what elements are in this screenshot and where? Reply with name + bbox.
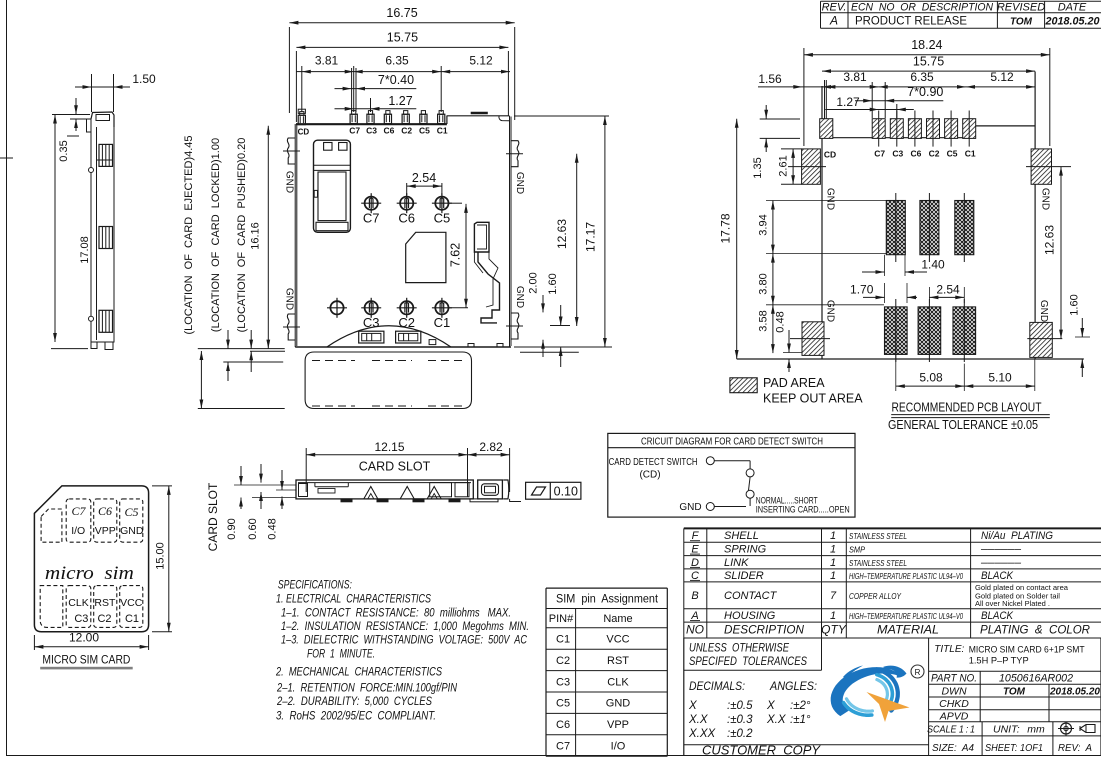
svg-text:1–1. CONTACT RESISTANCE: 80: 1–1. CONTACT RESISTANCE: 80 milliohms MA… (281, 608, 511, 620)
svg-text:12.15: 12.15 (374, 440, 404, 454)
svg-text:6.35: 6.35 (385, 54, 409, 68)
svg-text:CD: CD (298, 128, 310, 137)
svg-text:TOM: TOM (1003, 687, 1026, 698)
svg-text:mm: mm (1027, 724, 1045, 736)
svg-text:12.00: 12.00 (69, 631, 99, 645)
svg-text:C2: C2 (556, 655, 570, 667)
svg-text:(LOCATION OF CARD LOCKED)1.: (LOCATION OF CARD LOCKED)1.00 (210, 138, 222, 332)
svg-text:17.08: 17.08 (79, 236, 91, 264)
svg-text:PLATING & COLOR: PLATING & COLOR (980, 623, 1090, 637)
svg-text:0.60: 0.60 (247, 518, 259, 539)
svg-text:X.XX: X.XX (688, 728, 717, 740)
svg-text:C6: C6 (910, 149, 921, 159)
svg-text:MICRO SIM CARD: MICRO SIM CARD (42, 653, 130, 667)
svg-text:RECOMMENDED PCB LAYOUT: RECOMMENDED PCB LAYOUT (892, 401, 1042, 415)
svg-text:C3: C3 (366, 126, 377, 136)
svg-text:C3: C3 (74, 613, 88, 625)
svg-text:C1: C1 (125, 613, 139, 625)
svg-text:17.17: 17.17 (584, 222, 598, 252)
svg-text:C1: C1 (965, 149, 976, 159)
svg-text:GND: GND (1038, 300, 1049, 322)
svg-text:BLACK: BLACK (981, 610, 1014, 622)
svg-text:––––––: –––––– (980, 557, 1022, 569)
svg-text:C7: C7 (71, 504, 86, 518)
svg-text:R: R (915, 668, 921, 677)
svg-text:2. MECHANICAL CHARACTERISTIC: 2. MECHANICAL CHARACTERISTICS (275, 667, 442, 679)
svg-text:C1: C1 (437, 126, 448, 136)
svg-text:ECN NO OR DESCRIPTION: ECN NO OR DESCRIPTION (851, 2, 993, 14)
svg-text::±0.3: :±0.3 (727, 714, 753, 726)
svg-text:HOUSING: HOUSING (724, 610, 776, 622)
svg-text:5.10: 5.10 (988, 371, 1012, 385)
svg-text:1–3. DIELECTRIC WITHSTANDING: 1–3. DIELECTRIC WITHSTANDING VOLTAGE: 50… (281, 635, 528, 647)
svg-text:X.X: X.X (688, 714, 709, 726)
svg-text:RST: RST (607, 655, 629, 667)
svg-text:18.24: 18.24 (911, 38, 942, 52)
svg-text:C5: C5 (124, 505, 138, 519)
svg-text:1–2. INSULATION RESISTANCE:: 1–2. INSULATION RESISTANCE: 1,000 Megohm… (281, 621, 529, 633)
svg-text:C5: C5 (434, 211, 451, 226)
svg-text:PART NO.: PART NO. (931, 673, 977, 685)
svg-text:C7: C7 (874, 149, 885, 159)
svg-text:C7: C7 (363, 211, 380, 226)
svg-text:SPECIFICATIONS:: SPECIFICATIONS: (278, 580, 352, 592)
svg-text:15.75: 15.75 (387, 31, 418, 45)
svg-text:TOM: TOM (1010, 17, 1033, 28)
svg-text:CHKD: CHKD (939, 698, 969, 710)
svg-text:GND: GND (284, 288, 295, 310)
svg-text:0.10: 0.10 (554, 485, 578, 499)
svg-text:C3: C3 (892, 149, 903, 159)
svg-text:6.35: 6.35 (910, 70, 934, 84)
svg-text:CUSTOMER COPY: CUSTOMER COPY (702, 743, 821, 758)
svg-text:GND: GND (514, 172, 525, 194)
svg-text:0.48: 0.48 (267, 518, 279, 539)
svg-text:CLK: CLK (607, 676, 629, 688)
svg-text:MICRO SIM CARD 6+1P SMT: MICRO SIM CARD 6+1P SMT (969, 645, 1085, 656)
svg-text:12.63: 12.63 (555, 219, 569, 249)
svg-text:DATE: DATE (1058, 2, 1087, 14)
svg-text:SLIDER: SLIDER (724, 570, 764, 582)
svg-text:(LOCATION OF CARD EJECTED)4: (LOCATION OF CARD EJECTED)4.45 (183, 135, 195, 334)
svg-text:NO: NO (686, 623, 704, 637)
svg-text:C6: C6 (98, 504, 112, 518)
svg-text:VCC: VCC (606, 634, 629, 646)
svg-text:GND: GND (606, 698, 631, 710)
svg-text::±0.5: :±0.5 (727, 700, 753, 712)
svg-text:(CD): (CD) (639, 470, 660, 481)
svg-text:C6: C6 (398, 211, 415, 226)
svg-text:1: 1 (830, 610, 836, 622)
svg-text:VPP: VPP (95, 525, 116, 537)
svg-text:2.82: 2.82 (479, 440, 503, 454)
svg-text:DECIMALS:: DECIMALS: (689, 681, 745, 693)
svg-text:C5: C5 (419, 126, 430, 136)
svg-text:2–1. RETENTION FORCE:MIN.100: 2–1. RETENTION FORCE:MIN.100gf/PIN (276, 683, 457, 695)
svg-text:CLK: CLK (68, 597, 88, 609)
svg-text:16.75: 16.75 (386, 6, 417, 20)
svg-text:INSERTING CARD.....OPEN: INSERTING CARD.....OPEN (756, 505, 850, 516)
svg-text:Ni/Au PLATING: Ni/Au PLATING (981, 530, 1053, 542)
svg-text::±0.2: :±0.2 (727, 728, 753, 740)
svg-text:3.94: 3.94 (758, 214, 770, 235)
svg-text:C6: C6 (556, 719, 570, 731)
svg-text:2.61: 2.61 (778, 155, 790, 176)
svg-text:C5: C5 (947, 149, 958, 159)
svg-text:SIM pin Assignment: SIM pin Assignment (556, 594, 659, 606)
svg-text:SMP: SMP (849, 545, 865, 555)
svg-text:CARD DETECT SWITCH: CARD DETECT SWITCH (609, 457, 698, 468)
svg-text:VCC: VCC (120, 597, 143, 609)
svg-text:1. ELECTRICAL CHARACTERISTICS: 1. ELECTRICAL CHARACTERISTICS (276, 594, 431, 606)
svg-text:7*0.40: 7*0.40 (378, 73, 414, 87)
svg-text:12.63: 12.63 (1043, 225, 1057, 255)
svg-text:CARD SLOT: CARD SLOT (206, 482, 220, 551)
svg-text:1.56: 1.56 (758, 72, 782, 86)
svg-text:MATERIAL: MATERIAL (877, 623, 939, 637)
svg-text:C1: C1 (434, 315, 451, 330)
svg-text:VPP: VPP (607, 719, 629, 731)
svg-text:1.50: 1.50 (132, 72, 156, 86)
svg-text:(LOCATION OF CARD PUSHED)0.: (LOCATION OF CARD PUSHED)0.20 (236, 138, 248, 333)
svg-text:SHELL: SHELL (724, 530, 759, 542)
svg-text:1.27: 1.27 (388, 94, 412, 108)
svg-text:GND: GND (679, 502, 701, 513)
svg-text:REV.: REV. (822, 2, 847, 14)
svg-text:PRODUCT RELEASE: PRODUCT RELEASE (855, 14, 967, 28)
svg-text:7.62: 7.62 (449, 243, 463, 267)
svg-text:7: 7 (830, 590, 837, 602)
svg-text:1.60: 1.60 (547, 273, 559, 294)
svg-text:COPPER ALLOY: COPPER ALLOY (849, 591, 902, 601)
svg-text:0.35: 0.35 (58, 140, 70, 161)
svg-text:C1: C1 (556, 634, 570, 646)
svg-text:––––––: –––––– (980, 544, 1022, 556)
svg-text:3.58: 3.58 (758, 310, 770, 331)
svg-text:PAD AREA: PAD AREA (763, 376, 825, 390)
svg-text:X.X: X.X (766, 714, 787, 726)
svg-text:DWN: DWN (941, 686, 966, 698)
svg-text:3.81: 3.81 (843, 70, 867, 84)
svg-text:B: B (691, 590, 698, 602)
svg-text:C7: C7 (349, 126, 360, 136)
svg-text:HIGH–TEMPERATURE PLASTIC UL94–: HIGH–TEMPERATURE PLASTIC UL94–V0 (849, 571, 963, 581)
svg-text:CONTACT: CONTACT (724, 590, 778, 602)
svg-text:PIN#: PIN# (549, 613, 574, 625)
svg-text:DESCRIPTION: DESCRIPTION (724, 623, 804, 637)
svg-text:5.08: 5.08 (919, 371, 943, 385)
svg-text:BLACK: BLACK (981, 570, 1014, 582)
svg-text:FOR 1 MINUTE.: FOR 1 MINUTE. (307, 649, 375, 661)
svg-text:GND: GND (120, 525, 144, 537)
svg-text:C2: C2 (401, 126, 412, 136)
svg-text:5.12: 5.12 (990, 70, 1014, 84)
svg-text:Name: Name (603, 613, 632, 625)
svg-text:15.75: 15.75 (913, 55, 944, 69)
svg-text:SIZE: A4: SIZE: A4 (932, 742, 974, 754)
svg-text:1: 1 (830, 530, 836, 542)
svg-text:GND: GND (284, 171, 295, 193)
svg-text:3.81: 3.81 (315, 54, 339, 68)
svg-text:TITLE:: TITLE: (934, 644, 964, 655)
svg-text:C7: C7 (556, 741, 570, 753)
svg-text:2018.05.20: 2018.05.20 (1049, 687, 1100, 698)
svg-text:C5: C5 (556, 698, 570, 710)
svg-text:1: 1 (830, 544, 836, 556)
svg-text:CD: CD (824, 150, 836, 160)
svg-text:STAINLESS STEEL: STAINLESS STEEL (849, 558, 907, 568)
svg-text:All over Nickel Plated .: All over Nickel Plated . (975, 599, 1050, 608)
svg-text:CRICUIT DIAGRAM FOR CARD DETEC: CRICUIT DIAGRAM FOR CARD DETECT SWITCH (641, 437, 823, 448)
svg-text:5.12: 5.12 (469, 54, 493, 68)
svg-text:UNIT:: UNIT: (993, 724, 1020, 736)
svg-text:UNLESS OTHERWISE: UNLESS OTHERWISE (689, 643, 789, 655)
svg-text:1.5H P–P TYP: 1.5H P–P TYP (969, 656, 1029, 667)
svg-text:KEEP OUT AREA: KEEP OUT AREA (763, 392, 863, 406)
svg-text:ANGLES:: ANGLES: (769, 681, 817, 693)
svg-text:1: 1 (830, 570, 836, 582)
svg-text:GND: GND (825, 300, 836, 322)
svg-text:REV: A: REV: A (1058, 742, 1092, 754)
svg-text:SHEET: 1OF1: SHEET: 1OF1 (985, 742, 1043, 754)
svg-text:X: X (688, 700, 698, 712)
svg-text:STAINLESS STEEL: STAINLESS STEEL (849, 531, 907, 541)
svg-text:X: X (766, 700, 776, 712)
svg-text:GND: GND (514, 286, 525, 308)
svg-text:1.35: 1.35 (752, 157, 764, 178)
svg-text:GENERAL TOLERANCE ±0.05: GENERAL TOLERANCE ±0.05 (888, 418, 1038, 432)
svg-text:1: 1 (830, 557, 836, 569)
svg-text:C2: C2 (97, 613, 111, 625)
svg-text:A: A (829, 14, 838, 28)
svg-text:0.90: 0.90 (226, 518, 238, 539)
svg-text:APVD: APVD (939, 711, 969, 723)
svg-text::±1°: :±1° (790, 714, 811, 726)
svg-text:3. RoHS 2002/95/EC COMPLIAN: 3. RoHS 2002/95/EC COMPLIANT. (276, 711, 436, 723)
svg-text:2.54: 2.54 (412, 171, 436, 185)
svg-text:3.80: 3.80 (758, 273, 770, 294)
svg-text:16.16: 16.16 (250, 222, 262, 250)
svg-text:RST: RST (94, 597, 116, 609)
svg-text:1050616AR002: 1050616AR002 (999, 673, 1073, 685)
svg-text:C6: C6 (383, 126, 394, 136)
svg-text:SCALE 1 : 1: SCALE 1 : 1 (927, 724, 975, 736)
svg-text:micro sim: micro sim (45, 563, 134, 584)
svg-text:2–2. DURABILITY: 5,000 CYCL: 2–2. DURABILITY: 5,000 CYCLES (276, 696, 432, 708)
svg-text:HIGH–TEMPERATURE PLASTIC UL94–: HIGH–TEMPERATURE PLASTIC UL94–V0 (849, 611, 963, 621)
svg-text:I/O: I/O (71, 525, 85, 537)
svg-text:QTY: QTY (821, 623, 847, 637)
svg-text:SPRING: SPRING (724, 544, 767, 556)
svg-text:CARD SLOT: CARD SLOT (359, 460, 431, 474)
svg-text:1.40: 1.40 (921, 258, 945, 272)
svg-text:7*0.90: 7*0.90 (907, 85, 943, 99)
svg-text:I/O: I/O (611, 741, 626, 753)
svg-text:SPECIFED TOLERANCES: SPECIFED TOLERANCES (689, 656, 807, 668)
svg-text:1.27: 1.27 (836, 95, 860, 109)
svg-text:LINK: LINK (724, 557, 749, 569)
svg-text:C3: C3 (556, 676, 570, 688)
svg-text:0.48: 0.48 (774, 311, 786, 332)
svg-text:1.70: 1.70 (850, 283, 874, 297)
svg-text:GND: GND (1040, 188, 1051, 210)
svg-text:C2: C2 (929, 149, 940, 159)
svg-text:REVISED: REVISED (997, 2, 1045, 14)
svg-text:1.60: 1.60 (1068, 294, 1080, 315)
svg-text:GND: GND (825, 188, 836, 210)
svg-text:2018.05.20: 2018.05.20 (1045, 16, 1101, 28)
svg-text:15.00: 15.00 (155, 542, 167, 570)
svg-text:2.54: 2.54 (936, 283, 960, 297)
svg-text:2.00: 2.00 (528, 272, 540, 293)
svg-text::±2°: :±2° (790, 700, 811, 712)
svg-text:17.78: 17.78 (719, 213, 733, 243)
